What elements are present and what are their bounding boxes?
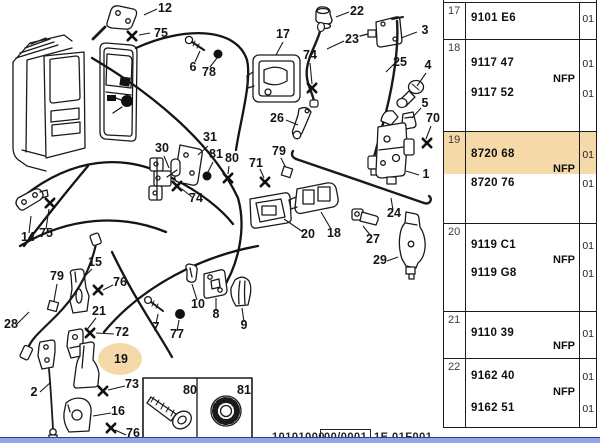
callout-15: 15 <box>88 255 102 269</box>
table-row-18[interactable]: 189117 47019117 5201NFP <box>444 39 596 131</box>
callout-80: 80 <box>225 151 239 165</box>
qty-value: 01 <box>582 58 594 70</box>
qty-value: 01 <box>582 371 594 383</box>
callout-5: 5 <box>422 96 429 110</box>
parts-table: 179101 E601189117 47019117 5201NFP198720… <box>443 0 597 428</box>
part-17-exterior-handle <box>247 55 300 102</box>
part-23-rod <box>307 23 325 108</box>
cross-marker-icon <box>107 424 115 432</box>
qty-value: 01 <box>582 178 594 190</box>
part-26-lever <box>293 108 312 139</box>
part-14-hinge <box>16 189 48 210</box>
table-row-17[interactable]: 179101 E601 <box>444 2 596 39</box>
part-number[interactable]: 9117 47 <box>471 57 514 69</box>
qty-value: 01 <box>582 240 594 252</box>
callout-28: 28 <box>4 317 18 331</box>
callout-7: 7 <box>153 320 160 334</box>
bottom-bar <box>0 437 600 443</box>
qty-column <box>579 359 596 428</box>
part-18-interior-handle <box>289 183 338 214</box>
callout-80: 80 <box>183 383 197 397</box>
callout-75: 75 <box>154 26 168 40</box>
fastener-inset-box <box>143 378 252 438</box>
callout-21: 21 <box>92 304 106 318</box>
part-9-wedge <box>231 277 251 306</box>
callout-9: 9 <box>241 318 248 332</box>
qty-value: 01 <box>582 403 594 415</box>
cross-marker-icon <box>86 329 94 337</box>
ref-number: 19 <box>444 132 466 223</box>
qty-value: 01 <box>582 328 594 340</box>
nfp-flag: NFP <box>553 73 575 85</box>
callout-79: 79 <box>272 144 286 158</box>
table-row-22[interactable]: 229162 40019162 5101NFP <box>444 358 596 428</box>
ref-number: 22 <box>444 359 466 428</box>
callout-81: 81 <box>209 147 223 161</box>
part-27-bracket <box>352 209 378 225</box>
part-6-screw <box>185 36 204 50</box>
part-16-striker-wedge <box>64 398 91 432</box>
callout-29: 29 <box>373 253 387 267</box>
part-29-lock-actuator <box>399 212 425 279</box>
callout-19: 19 <box>114 352 128 366</box>
ref-number: 17 <box>444 3 466 39</box>
square-marker-icon <box>47 300 58 311</box>
callout-16: 16 <box>111 404 125 418</box>
part-number[interactable]: 9110 39 <box>471 327 514 339</box>
part-7-screw <box>145 297 163 311</box>
callout-77: 77 <box>170 327 184 341</box>
nfp-flag: NFP <box>553 254 575 266</box>
nfp-flag: NFP <box>553 386 575 398</box>
ref-number: 21 <box>444 312 466 358</box>
callout-18: 18 <box>327 226 341 240</box>
callout-8: 8 <box>213 307 220 321</box>
van-illustration <box>13 35 85 171</box>
callout-4: 4 <box>425 58 432 72</box>
table-row-19[interactable]: 198720 68018720 7601NFP <box>444 131 596 223</box>
callout-6: 6 <box>190 60 197 74</box>
qty-value: 01 <box>582 88 594 100</box>
callout-78: 78 <box>202 65 216 79</box>
callout-27: 27 <box>366 232 380 246</box>
cross-marker-icon <box>423 139 431 147</box>
cross-marker-icon <box>99 387 107 395</box>
square-marker-icon <box>281 166 292 177</box>
callout-79: 79 <box>50 269 64 283</box>
callout-2: 2 <box>31 385 38 399</box>
table-row-21[interactable]: 219110 3901NFP <box>444 311 596 358</box>
callout-25: 25 <box>393 55 407 69</box>
part-number[interactable]: 9101 E6 <box>471 12 516 24</box>
callout-12: 12 <box>158 1 172 15</box>
part-number[interactable]: 8720 76 <box>471 177 515 189</box>
callout-74: 74 <box>189 191 203 205</box>
cross-marker-icon <box>46 199 54 207</box>
callout-73: 73 <box>125 377 139 391</box>
callout-75: 75 <box>39 226 53 240</box>
cross-marker-icon <box>94 286 102 294</box>
callout-31: 31 <box>203 130 217 144</box>
part-4-lock-cylinder <box>397 81 424 108</box>
callout-71: 71 <box>249 156 263 170</box>
table-row-20[interactable]: 209119 C1019119 G801NFP <box>444 223 596 311</box>
callout-1: 1 <box>423 167 430 181</box>
part-number[interactable]: 9119 C1 <box>471 239 516 251</box>
part-number[interactable]: 9162 40 <box>471 370 515 382</box>
dot-marker-icon <box>214 50 223 59</box>
callout-3: 3 <box>422 23 429 37</box>
cross-marker-icon <box>128 32 136 40</box>
parts-catalog-page: 1275678177422233254570267971124201827293… <box>0 0 600 443</box>
callout-74: 74 <box>303 48 317 62</box>
nfp-flag: NFP <box>553 163 575 175</box>
callout-26: 26 <box>270 111 284 125</box>
callout-76: 76 <box>113 275 127 289</box>
qty-value: 01 <box>582 149 594 161</box>
callout-20: 20 <box>301 227 315 241</box>
callout-24: 24 <box>387 206 401 220</box>
callout-23: 23 <box>345 32 359 46</box>
qty-value: 01 <box>582 13 594 25</box>
callout-30: 30 <box>155 141 169 155</box>
callout-14: 14 <box>21 230 35 244</box>
part-20-handle-bezel <box>250 193 291 228</box>
qty-value: 01 <box>582 268 594 280</box>
ref-number: 20 <box>444 224 466 311</box>
ref-number: 18 <box>444 40 466 131</box>
callout-22: 22 <box>350 4 364 18</box>
qty-column <box>579 40 596 131</box>
part-81-lock-washer <box>211 396 241 426</box>
callout-70: 70 <box>426 111 440 125</box>
part-3-striker <box>360 17 402 47</box>
callout-72: 72 <box>115 325 129 339</box>
part-number[interactable]: 9162 51 <box>471 402 515 414</box>
callout-17: 17 <box>276 27 290 41</box>
cross-marker-icon <box>173 182 181 190</box>
nfp-flag: NFP <box>553 340 575 352</box>
part-8-striker-plate <box>204 270 227 298</box>
part-10-clip <box>186 264 197 282</box>
part-number[interactable]: 8720 68 <box>471 148 515 160</box>
dot-marker-icon <box>203 172 212 181</box>
callout-81: 81 <box>237 383 251 397</box>
callout-10: 10 <box>191 297 205 311</box>
open-door-illustration <box>100 43 137 141</box>
part-number[interactable]: 9117 52 <box>471 87 514 99</box>
cross-marker-icon <box>261 178 269 186</box>
dot-marker-icon <box>175 309 185 319</box>
part-number[interactable]: 9119 G8 <box>471 267 517 279</box>
